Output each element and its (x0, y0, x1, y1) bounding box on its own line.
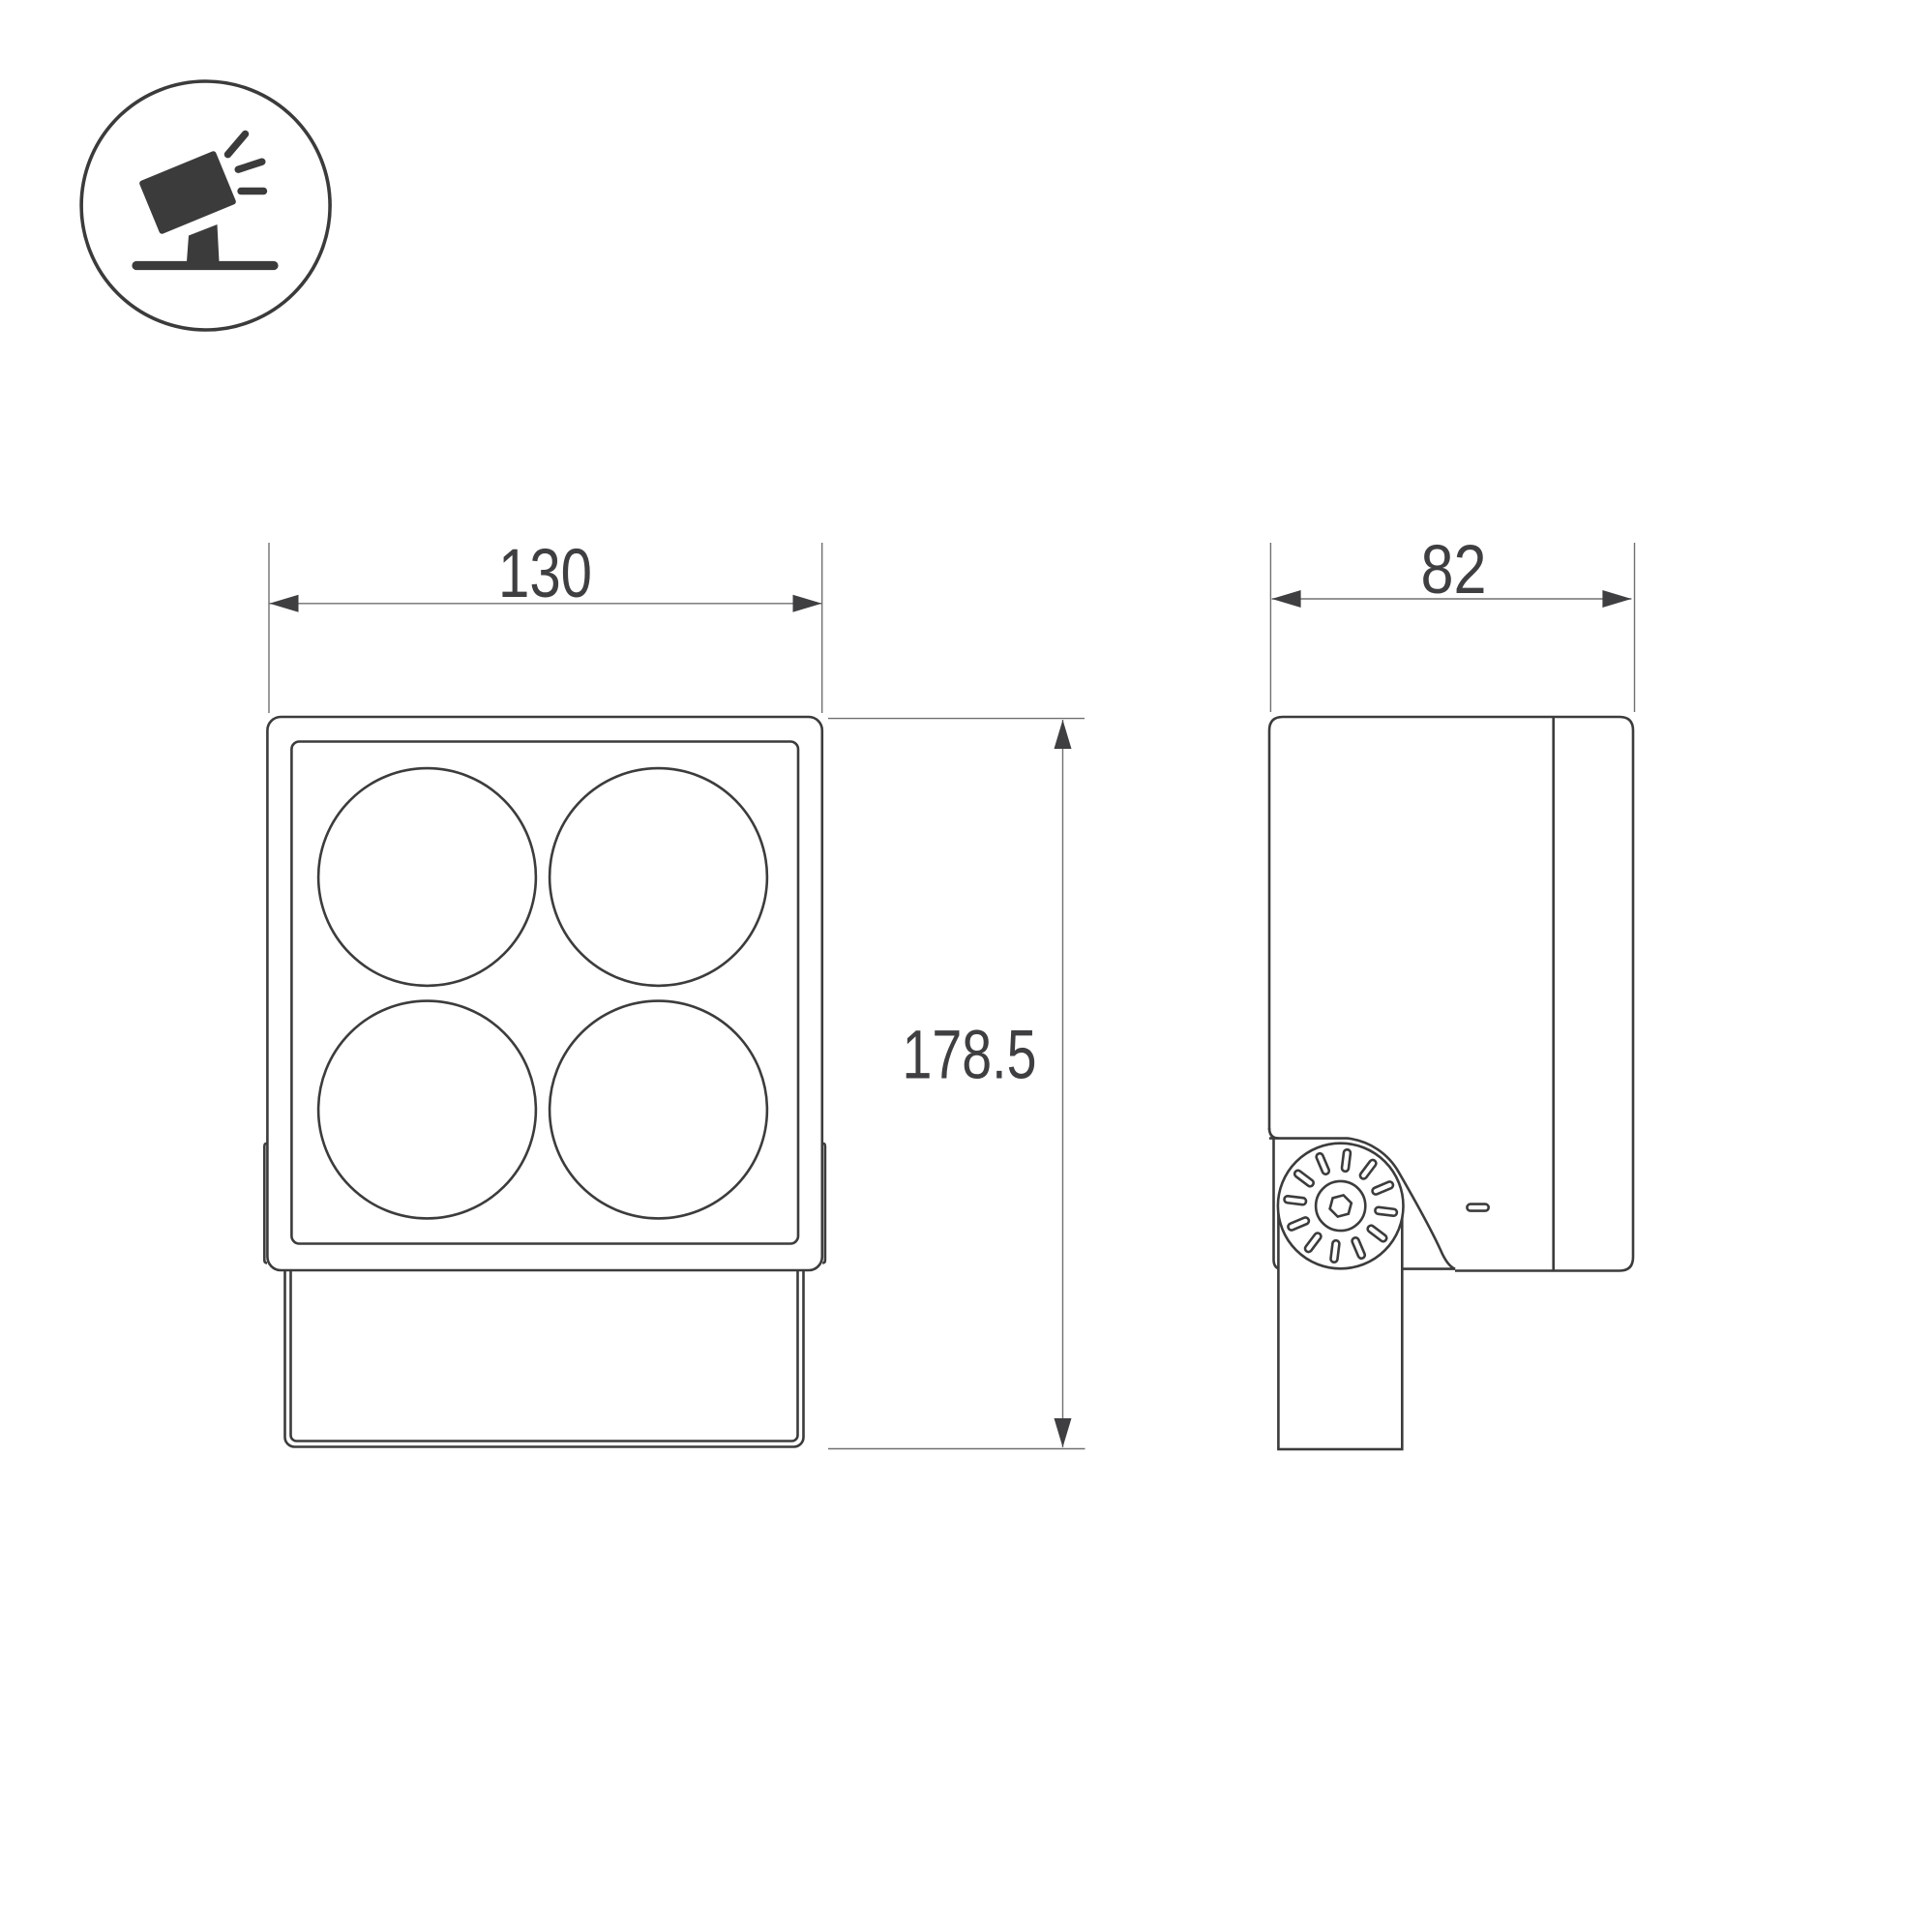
svg-text:130: 130 (498, 536, 592, 612)
svg-text:178.5: 178.5 (903, 1018, 1037, 1094)
svg-text:82: 82 (1421, 532, 1487, 609)
